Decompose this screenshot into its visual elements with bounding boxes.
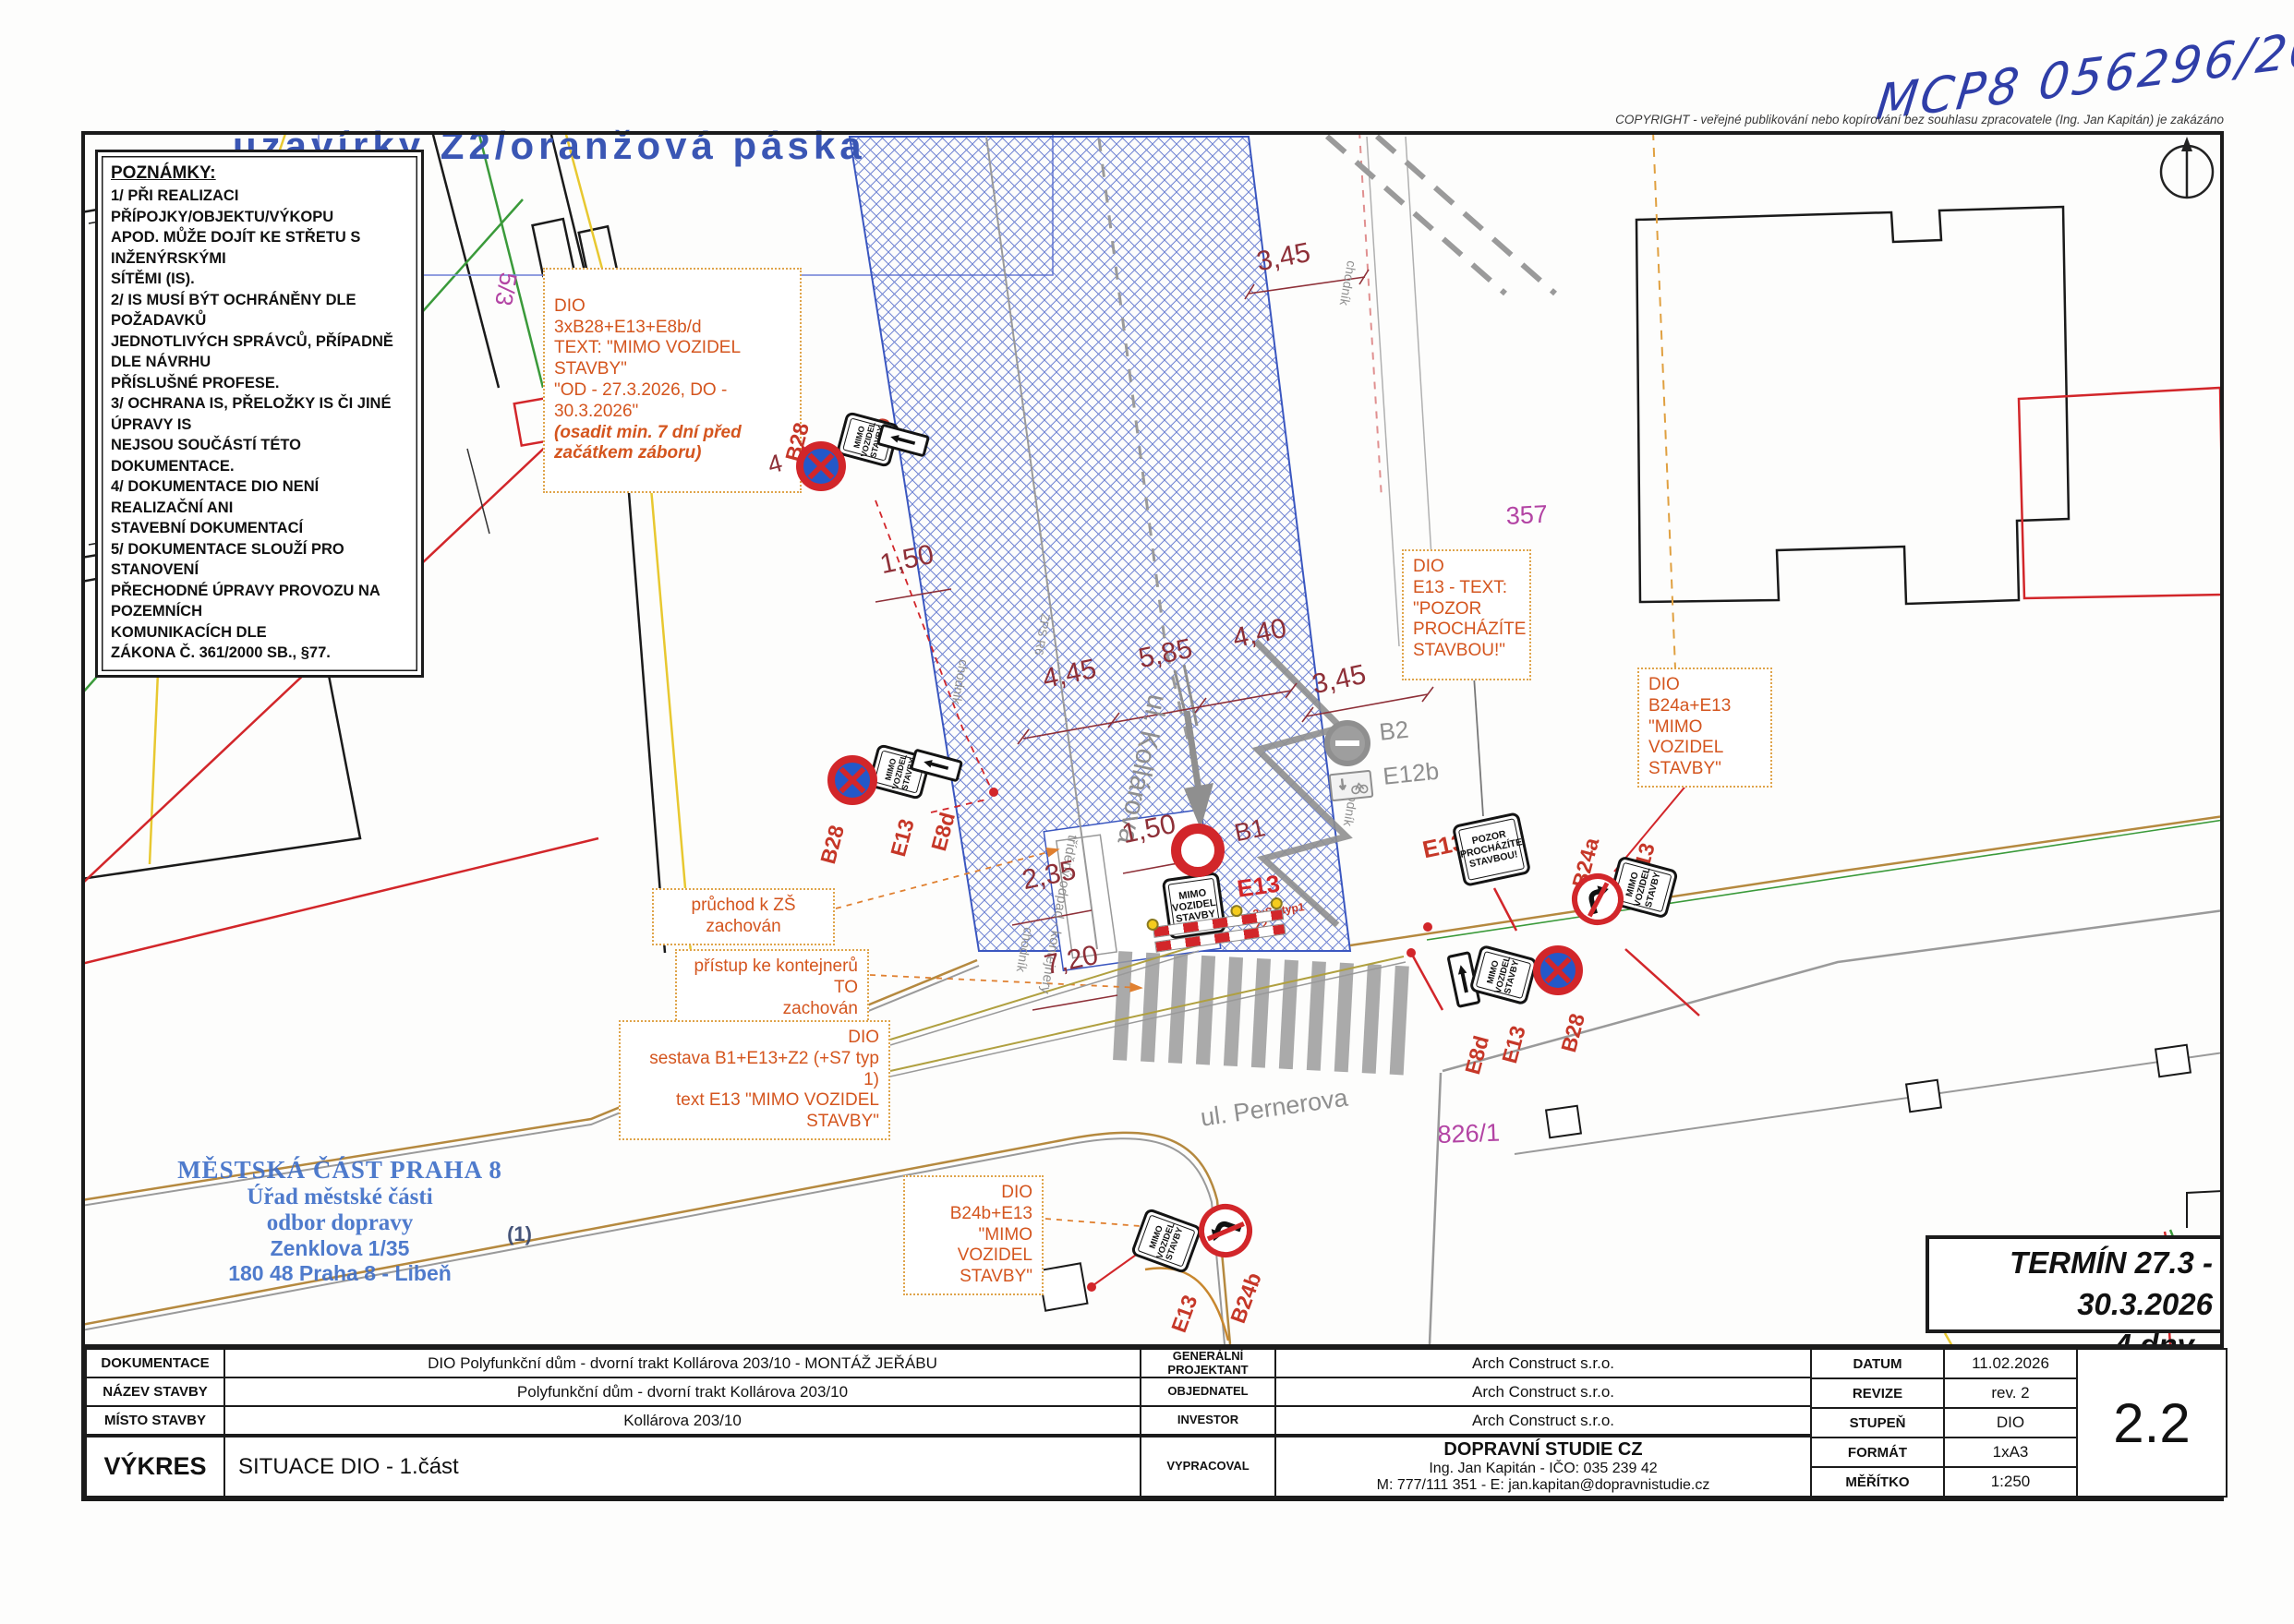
tb-label-nazev: NÁZEV STAVBY (85, 1377, 225, 1407)
e13-mimo-text: MIMO VOZIDEL STAVBY (1137, 1214, 1195, 1267)
title-block: DOKUMENTACE DIO Polyfunkční dům - dvorní… (81, 1344, 2224, 1501)
b28-no-stopping-sign-icon (1533, 945, 1583, 995)
annotation-dio-b28-note: (osadit min. 7 dní před začátkem záboru) (554, 423, 791, 465)
tb-label-stupen: STUPEŇ (1810, 1407, 1945, 1438)
notes-body: 1/ PŘI REALIZACI PŘÍPOJKY/OBJEKTU/VÝKOPU… (111, 186, 408, 664)
tb-vypracoval-contact: M: 777/111 351 - E: jan.kapitan@dopravni… (1377, 1477, 1710, 1494)
tb-label-datum: DATUM (1810, 1348, 1945, 1379)
tb-label-vykres: VÝKRES (85, 1434, 225, 1498)
tb-label-format: FORMÁT (1810, 1437, 1945, 1468)
stamp-line4: Zenklova 1/35 (155, 1236, 525, 1261)
utility-line-orange (1653, 131, 1675, 668)
tb-label-misto: MÍSTO STAVBY (85, 1405, 225, 1436)
stamp-line1: MĚSTSKÁ ČÁST PRAHA 8 (155, 1156, 525, 1185)
tb-label-revize: REVIZE (1810, 1377, 1945, 1409)
annotation-b24b: DIO B24b+E13 "MIMO VOZIDEL STAVBY" (903, 1175, 1044, 1295)
right-buildings (1636, 207, 2224, 604)
municipality-stamp: MĚSTSKÁ ČÁST PRAHA 8 Úřad městské části … (155, 1156, 525, 1286)
zebra-crossing (1113, 951, 1409, 1075)
tb-value-dokumentace: DIO Polyfunkční dům - dvorní trakt Kollá… (223, 1348, 1141, 1378)
tb-value-meritko: 1:250 (1943, 1466, 2078, 1498)
annotation-dio-b28-text: DIO 3xB28+E13+E8b/d TEXT: "MIMO VOZIDEL … (554, 296, 740, 421)
b28-no-stopping-sign-icon (796, 441, 846, 491)
annotation-sestava-b1: DIO sestava B1+E13+Z2 (+S7 typ 1) text E… (619, 1020, 890, 1140)
tb-vypracoval-person: Ing. Jan Kapitán - IČO: 035 239 42 (1429, 1461, 1657, 1477)
annotation-dio-b28: DIO 3xB28+E13+E8b/d TEXT: "MIMO VOZIDEL … (543, 268, 802, 493)
annotation-pristup: přístup ke kontejnerů TO zachován (675, 949, 869, 1027)
copyright-line: COPYRIGHT - veřejné publikování nebo kop… (1154, 113, 2224, 126)
tb-value-revize: rev. 2 (1943, 1377, 2078, 1409)
b2-do-not-enter-sign-icon (1324, 720, 1370, 766)
notes-box: POZNÁMKY: 1/ PŘI REALIZACI PŘÍPOJKY/OBJE… (95, 150, 424, 678)
tb-value-objednatel: Arch Construct s.r.o. (1274, 1377, 1812, 1407)
stamp-mark: (1) (507, 1222, 532, 1246)
annotation-e13-pozor: DIO E13 - TEXT: "POZOR PROCHÁZÍTE STAVBO… (1402, 549, 1531, 680)
annotation-pruchod: průchod k ZŠ zachován (652, 888, 835, 945)
parcel-826-1: 826/1 (1437, 1119, 1501, 1149)
tb-label-vypracoval: VYPRACOVAL (1140, 1434, 1276, 1498)
annotation-b24a: DIO B24a+E13 "MIMO VOZIDEL STAVBY" (1637, 668, 1772, 788)
e12b-panel-icon (1329, 770, 1374, 802)
termin-box: TERMÍN 27.3 - 30.3.2026 4 dny - PÁ,SO,NE… (1926, 1235, 2224, 1333)
stamp-line3: odbor dopravy (155, 1210, 525, 1236)
tb-label-gen-projektant: GENERÁLNÍ PROJEKTANT (1140, 1348, 1276, 1378)
tb-value-nazev: Polyfunkční dům - dvorní trakt Kollárova… (223, 1377, 1141, 1407)
tb-value-format: 1xA3 (1943, 1437, 2078, 1468)
label-e12b: E12b (1382, 757, 1441, 791)
parcel-357: 357 (1505, 500, 1549, 531)
label-b2: B2 (1378, 716, 1410, 747)
tb-label-investor: INVESTOR (1140, 1405, 1276, 1436)
parcel-5-3: 5/3 (489, 271, 523, 308)
tb-label-dokumentace: DOKUMENTACE (85, 1348, 225, 1378)
tb-value-gen-projektant: Arch Construct s.r.o. (1274, 1348, 1812, 1378)
tb-value-datum: 11.02.2026 (1943, 1348, 2078, 1379)
tb-vypracoval-firm: DOPRAVNÍ STUDIE CZ (1443, 1439, 1642, 1461)
tb-value-vykres: SITUACE DIO - 1.část (223, 1434, 1141, 1498)
drawing-sheet: MCP8 056296/2026 COPYRIGHT - veřejné pub… (0, 0, 2294, 1624)
stamp-line2: Úřad městské části (155, 1185, 525, 1210)
tb-value-vypracoval: DOPRAVNÍ STUDIE CZ Ing. Jan Kapitán - IČ… (1274, 1434, 1812, 1498)
tb-value-misto: Kollárova 203/10 (223, 1405, 1141, 1436)
tb-value-investor: Arch Construct s.r.o. (1274, 1405, 1812, 1436)
tb-value-stupen: DIO (1943, 1407, 2078, 1438)
e13-mimo-text: MIMO VOZIDEL STAVBY (1476, 951, 1532, 999)
b1-no-entry-sign-icon (1171, 824, 1225, 877)
tb-label-meritko: MĚŘÍTKO (1810, 1466, 1945, 1498)
north-arrow-icon (2161, 137, 2213, 198)
notes-title: POZNÁMKY: (111, 163, 408, 184)
stamp-line5: 180 48 Praha 8 - Libeň (155, 1261, 525, 1286)
tb-label-objednatel: OBJEDNATEL (1140, 1377, 1276, 1407)
tb-sheet-number: 2.2 (2076, 1348, 2228, 1498)
e13-pozor-text: POZOR PROCHÁZÍTE STAVBOU! (1458, 818, 1525, 881)
b28-no-stopping-sign-icon (827, 755, 877, 805)
